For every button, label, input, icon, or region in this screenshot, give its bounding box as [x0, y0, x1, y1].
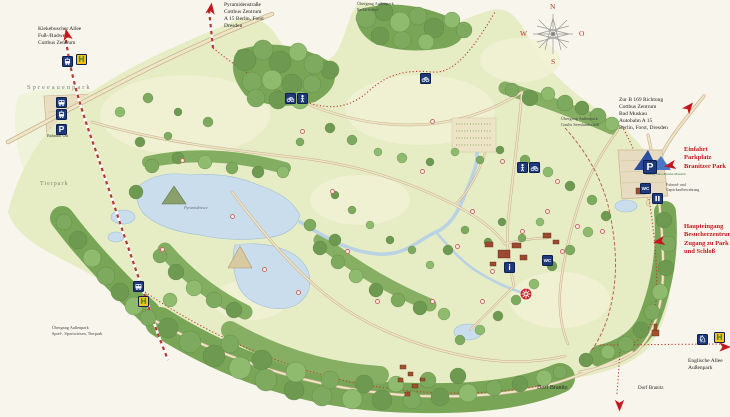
haupteingang-label: HaupteingangBesucherzentrumZugang zu Par… — [684, 223, 730, 256]
bus-tierpark-icon — [133, 281, 144, 292]
poi-marker-4 — [296, 290, 301, 295]
haltestelle-kiekebuscher-icon: H — [76, 54, 87, 65]
uebergang-gaulis-label: Übergang AußenparkGaulis Seenlandschaft — [561, 116, 599, 127]
poi-marker-6 — [345, 249, 350, 254]
spreeauenpark-label: Spreeauenpark — [27, 84, 92, 92]
map-artwork — [0, 0, 730, 417]
fahrrad-aufbewahrung-label: Fahrrad- undGepäckaufbewahrung — [666, 183, 699, 193]
park-map: N O S W Kiekebuscher AlleeFuß-/RadwegCot… — [0, 0, 730, 417]
poi-marker-2 — [230, 214, 235, 219]
compass-rose — [531, 12, 575, 56]
parking-branitz-icon: P — [643, 160, 657, 174]
wc-visitor-icon: WC — [640, 183, 651, 194]
gate-visitor-icon — [652, 193, 663, 204]
pyramidenstrasse-label: PyramidenstraßeCottbus ZentrumA 15 Berli… — [224, 2, 264, 30]
haltestelle-south-icon: H — [138, 296, 149, 307]
bike-route-east-icon — [529, 162, 540, 173]
riding-trail-icon: ♘ — [697, 334, 708, 345]
info-schloss-icon: i — [504, 262, 515, 273]
compass-east: O — [579, 29, 584, 38]
poi-marker-19 — [330, 189, 335, 194]
tram-spreeauenpark-icon — [56, 109, 67, 120]
poi-marker-8 — [455, 244, 460, 249]
pedestrian-route-east-icon — [517, 162, 528, 173]
compass-north: N — [550, 2, 555, 11]
poi-marker-21 — [430, 119, 435, 124]
poi-marker-20 — [300, 129, 305, 134]
bike-route-northeast-icon — [420, 73, 431, 84]
poi-marker-5 — [160, 247, 165, 252]
pedestrian-route-north-icon — [297, 93, 308, 104]
poi-marker-14 — [575, 224, 580, 229]
tram-stop-kiekebuscher-icon — [62, 56, 73, 67]
arrow-dorf-branitz — [613, 394, 626, 412]
tierpark-label: Tierpark — [40, 181, 68, 189]
parking-spreeauenpark-icon: P — [56, 124, 67, 135]
dorf-branitz-east-label: Dorf Branitz — [638, 386, 663, 392]
uebergang-spielwiesen-label: Übergang AußenparkSpiel-, Sportwiesen, T… — [52, 325, 102, 336]
poi-marker-18 — [375, 299, 380, 304]
uebergang-parkfriedhof-label: Übergang AußenparkParkfriedhof — [357, 1, 394, 12]
zur-b169-label: Zur B 169 RichtungCottbus ZentrumBad Mus… — [619, 97, 668, 132]
poi-marker-9 — [470, 209, 475, 214]
compass-west: W — [520, 29, 527, 38]
poi-marker-12 — [545, 209, 550, 214]
poi-marker-16 — [480, 299, 485, 304]
poi-marker-23 — [555, 179, 560, 184]
pyramidensee-label: Pyramidensee — [184, 205, 208, 210]
einfahrt-parkplatz-label: EinfahrtParkplatzBranitzer Park — [684, 146, 726, 171]
bus-spreeauenpark-icon — [56, 97, 67, 108]
poi-marker-22 — [500, 159, 505, 164]
arrow-pyramidenstrasse — [203, 1, 218, 21]
compass-south: S — [551, 57, 555, 66]
wc-schloss-icon: WC — [542, 255, 553, 266]
poi-marker-13 — [560, 249, 565, 254]
poi-marker-17 — [430, 299, 435, 304]
wheel-marker-icon — [520, 288, 532, 300]
poi-marker-3 — [262, 267, 267, 272]
poi-marker-7 — [420, 169, 425, 174]
arrow-englische-allee — [714, 341, 730, 354]
poi-marker-11 — [520, 229, 525, 234]
poi-marker-15 — [600, 229, 605, 234]
poi-marker-10 — [490, 269, 495, 274]
bike-route-north-icon — [285, 93, 296, 104]
poi-marker-1 — [180, 158, 185, 163]
dorf-branitz-west-label: Dorf Branitz — [537, 385, 568, 393]
englische-allee-label: Englische AlleeAußenpark — [688, 358, 723, 372]
